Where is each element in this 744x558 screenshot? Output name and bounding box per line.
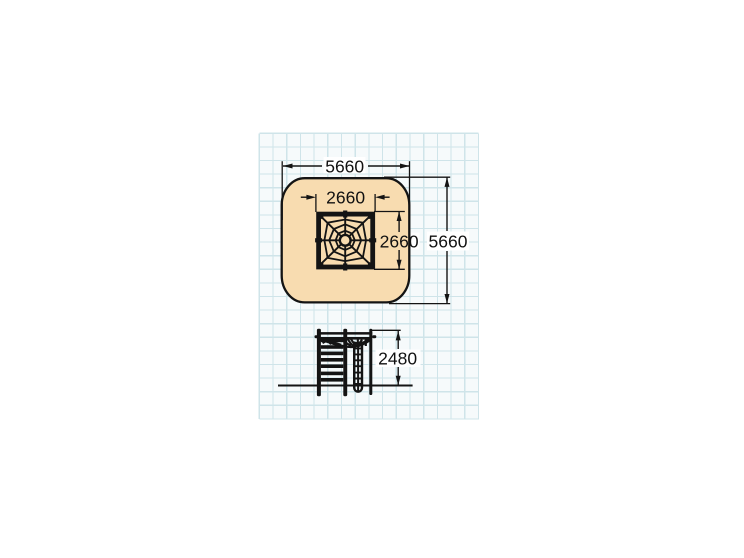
svg-text:2660: 2660 (380, 231, 419, 251)
svg-text:5660: 5660 (325, 156, 364, 176)
svg-text:2480: 2480 (378, 348, 417, 368)
svg-text:5660: 5660 (429, 231, 468, 251)
svg-text:2660: 2660 (326, 188, 365, 208)
